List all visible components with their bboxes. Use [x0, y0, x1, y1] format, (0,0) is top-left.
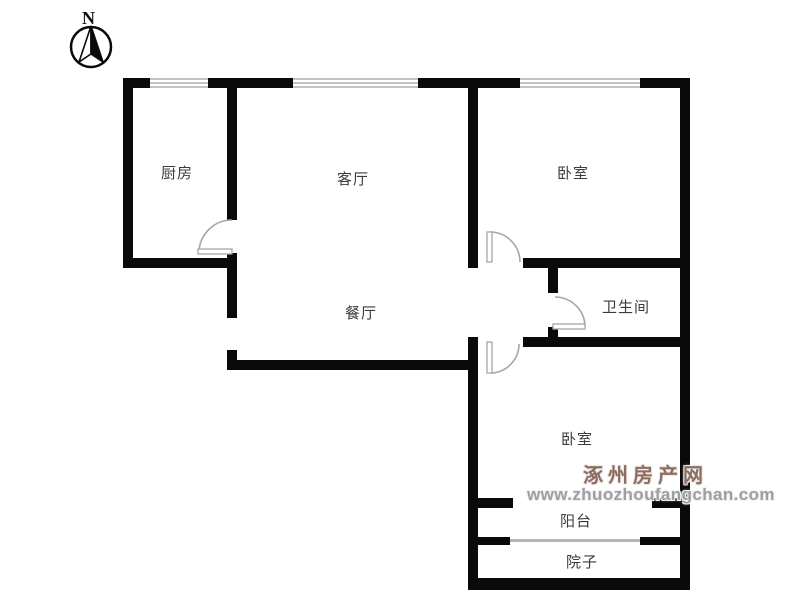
watermark-site-name: 涿州房产网 [583, 459, 708, 488]
room-label-kitchen: 厨房 [161, 162, 193, 183]
room-label-bathroom: 卫生间 [602, 296, 650, 317]
plan-overlay-svg [0, 0, 800, 600]
floor-plan: N 厨房 客厅 卧室 餐厅 卫生间 卧室 阳台 院子 涿州房产网 www.zhu… [0, 0, 800, 600]
bedroom-north-door-arc [487, 232, 520, 262]
compass-icon [71, 26, 111, 67]
bathroom-door-arc [553, 297, 585, 329]
compass-north-label: N [82, 8, 95, 29]
room-label-bedroom-north: 卧室 [557, 162, 589, 183]
watermark-site-url: www.zhuozhoufangchan.com [527, 485, 775, 505]
kitchen-door-arc [198, 220, 232, 254]
bedroom-south-door-arc [487, 342, 519, 373]
room-label-balcony: 阳台 [560, 510, 592, 531]
room-label-dining-room: 餐厅 [345, 302, 377, 323]
room-label-yard: 院子 [566, 551, 598, 572]
room-label-bedroom-south: 卧室 [561, 428, 593, 449]
room-label-living-room: 客厅 [337, 168, 369, 189]
